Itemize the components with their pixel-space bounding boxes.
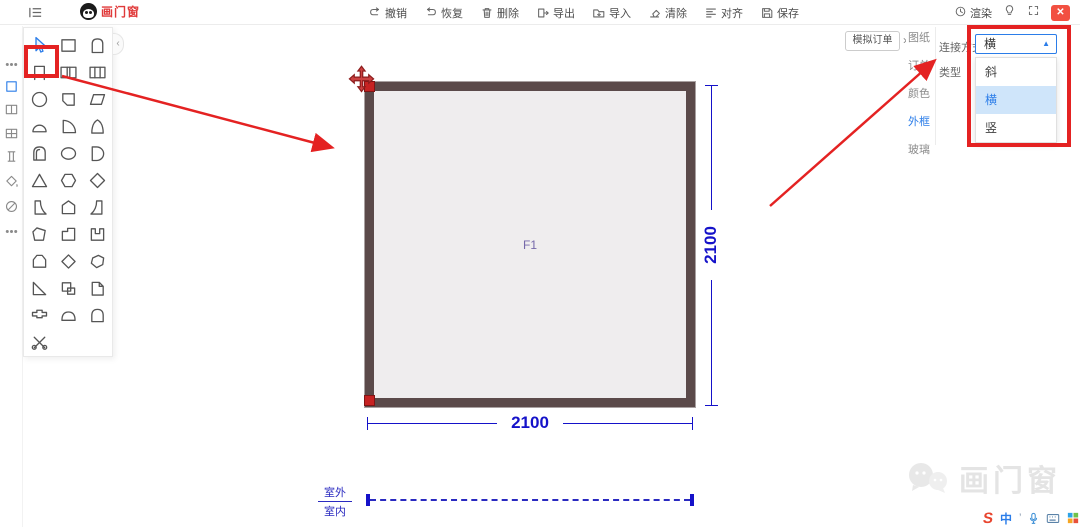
watermark-text: 画门窗: [959, 456, 1061, 500]
vdim-line-bottom: [711, 280, 712, 406]
shape-quarter-pane-right[interactable]: [83, 194, 112, 221]
rail-fill-category-icon[interactable]: [3, 173, 20, 190]
tab-color[interactable]: 颜色: [908, 85, 936, 101]
rail-more-tools-bottom-icon[interactable]: [3, 223, 20, 240]
option-horizontal[interactable]: 横: [976, 86, 1056, 114]
clear-icon: [648, 6, 662, 20]
tab-outer-frame[interactable]: 外框: [908, 113, 936, 129]
shape-palette: [23, 27, 113, 357]
frame-label: F1: [365, 82, 695, 407]
import-icon: [592, 6, 606, 20]
dropdown-value: 横: [984, 37, 996, 51]
shape-dome-arch[interactable]: [83, 302, 112, 329]
tabs-divider: [935, 27, 936, 145]
ime-toolbar: S 中 ’: [983, 509, 1079, 527]
shape-round-top-door[interactable]: [25, 140, 54, 167]
shape-select-cursor[interactable]: [25, 32, 54, 59]
inout-guide-line: [370, 499, 690, 501]
width-dimension: 2100: [498, 413, 562, 433]
top-bar: 画门窗 撤销恢复删除导出导入清除对齐保存 渲染 ✕: [0, 0, 1080, 25]
guide-cap-right: [690, 494, 694, 506]
topbar-right-group: 渲染 ✕: [954, 0, 1070, 25]
option-vertical[interactable]: 竖: [976, 114, 1056, 142]
tab-glass[interactable]: 玻璃: [908, 141, 936, 157]
shape-pentagon[interactable]: [54, 194, 83, 221]
ime-mode-chinese[interactable]: 中: [1000, 510, 1012, 527]
ime-toolbox-icon[interactable]: [1067, 512, 1079, 524]
shape-parallelogram[interactable]: [83, 86, 112, 113]
shape-irregular-pentagon[interactable]: [25, 221, 54, 248]
delete-button[interactable]: 删除: [480, 5, 519, 21]
wechat-bubbles-icon: [905, 460, 951, 496]
logo-avatar-icon: [80, 3, 97, 20]
type-label: 类型: [939, 64, 961, 80]
hdim-tick-right: [692, 417, 693, 430]
close-button[interactable]: ✕: [1051, 5, 1070, 21]
dropdown-options: 斜横竖: [975, 57, 1057, 143]
hdim-line-right: [563, 423, 692, 424]
shape-hexagon[interactable]: [54, 167, 83, 194]
export-button[interactable]: 导出: [536, 5, 575, 21]
ime-apostrophe[interactable]: ’: [1019, 512, 1021, 524]
undo-button[interactable]: 撤销: [368, 5, 407, 21]
align-button[interactable]: 对齐: [704, 5, 743, 21]
left-rail: [0, 26, 23, 527]
inside-label: 室内: [318, 503, 352, 519]
outside-label: 室外: [318, 484, 352, 500]
export-icon: [536, 6, 550, 20]
shape-scissors[interactable]: [25, 329, 54, 356]
shape-quarter-circle[interactable]: [54, 113, 83, 140]
rail-four-pane-category-icon[interactable]: [3, 125, 20, 142]
shape-circle[interactable]: [25, 86, 54, 113]
rail-disabled-category-icon[interactable]: [3, 198, 20, 215]
shape-soft-diamond[interactable]: [54, 248, 83, 275]
guide-cap-left: [366, 494, 370, 506]
clear-button[interactable]: 清除: [648, 5, 687, 21]
redo-button[interactable]: 恢复: [424, 5, 463, 21]
watermark: 画门窗: [905, 456, 1061, 500]
hdim-line-left: [368, 423, 497, 424]
frame-id-text: F1: [523, 238, 537, 252]
redo-icon: [424, 6, 438, 20]
app-logo: 画门窗: [80, 3, 140, 20]
frame-handle-bottomleft[interactable]: [364, 395, 375, 406]
shape-corner-squares[interactable]: [54, 275, 83, 302]
render-label: 渲染: [970, 5, 992, 21]
shape-right-triangle[interactable]: [25, 275, 54, 302]
option-slant[interactable]: 斜: [976, 58, 1056, 86]
idea-bulb-icon[interactable]: [1003, 4, 1016, 22]
shape-arch-door[interactable]: [83, 32, 112, 59]
app-title: 画门窗: [101, 3, 140, 20]
save-button[interactable]: 保存: [760, 5, 799, 21]
property-tabs: 图纸订单颜色外框玻璃: [908, 29, 936, 169]
clock-icon: [954, 5, 967, 21]
fullscreen-icon[interactable]: [1027, 4, 1040, 22]
caret-up-icon: ▲: [1042, 35, 1050, 53]
shape-u-bracket[interactable]: [83, 221, 112, 248]
inout-labels: 室外 室内: [318, 484, 352, 519]
save-icon: [760, 6, 774, 20]
shape-pointed-arch[interactable]: [83, 113, 112, 140]
shape-low-dome[interactable]: [54, 302, 83, 329]
microphone-icon[interactable]: [1028, 512, 1039, 525]
main-toolbar: 撤销恢复删除导出导入清除对齐保存: [368, 0, 799, 25]
align-icon: [704, 6, 718, 20]
delete-icon: [480, 6, 494, 20]
shape-ellipse[interactable]: [54, 140, 83, 167]
shape-diamond[interactable]: [83, 167, 112, 194]
inout-divider: [318, 501, 352, 502]
shape-folded-page[interactable]: [83, 275, 112, 302]
mock-order-button[interactable]: 模拟订单: [845, 31, 900, 51]
rail-more-tools-top-icon[interactable]: [3, 56, 20, 73]
shape-double-pane[interactable]: [54, 59, 83, 86]
shape-flat-house[interactable]: [25, 248, 54, 275]
rail-two-pane-category-icon[interactable]: [3, 101, 20, 118]
tab-drawing[interactable]: 图纸: [908, 29, 936, 45]
shape-triple-pane[interactable]: [83, 59, 112, 86]
render-button[interactable]: 渲染: [954, 5, 992, 21]
shape-free-polygon[interactable]: [83, 248, 112, 275]
rail-rect-category-icon[interactable]: [3, 78, 20, 95]
shape-quarter-pane-left[interactable]: [25, 194, 54, 221]
keyboard-icon[interactable]: [1046, 513, 1060, 524]
undo-icon: [368, 6, 382, 20]
hamburger-icon[interactable]: [28, 5, 43, 20]
shape-top-open-frame[interactable]: [25, 59, 54, 86]
shape-t-bracket[interactable]: [25, 302, 54, 329]
shape-rect[interactable]: [54, 32, 83, 59]
connect-method-dropdown[interactable]: 横 ▲: [975, 34, 1057, 54]
rail-beam-category-icon[interactable]: [3, 148, 20, 165]
shape-triangle[interactable]: [25, 167, 54, 194]
shape-step-rect[interactable]: [54, 221, 83, 248]
tab-order[interactable]: 订单: [908, 57, 936, 73]
sogou-logo[interactable]: S: [982, 510, 994, 527]
move-cursor-icon: [347, 65, 376, 94]
vdim-line-top: [711, 85, 712, 210]
import-button[interactable]: 导入: [592, 5, 631, 21]
height-dimension: 2100: [701, 216, 721, 274]
palette-collapse-chevron[interactable]: ‹: [113, 33, 124, 55]
shape-semicircle[interactable]: [25, 113, 54, 140]
shape-notched-rect[interactable]: [54, 86, 83, 113]
shape-half-round-right[interactable]: [83, 140, 112, 167]
